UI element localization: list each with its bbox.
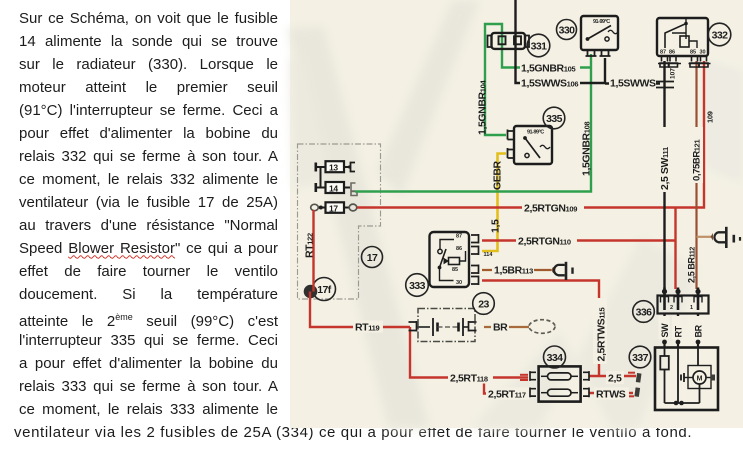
svg-text:85: 85 <box>452 267 458 273</box>
svg-text:86: 86 <box>669 50 675 56</box>
svg-text:1,5: 1,5 <box>490 219 502 233</box>
svg-text:91-99°C: 91-99°C <box>527 130 544 136</box>
svg-text:GEBR: GEBR <box>492 160 504 190</box>
svg-text:86: 86 <box>456 246 462 252</box>
svg-text:BR: BR <box>693 324 703 337</box>
svg-text:114: 114 <box>484 252 494 258</box>
svg-text:0,75BR121: 0,75BR121 <box>692 139 703 181</box>
svg-text:30: 30 <box>700 50 706 56</box>
svg-text:2,5RTGN109: 2,5RTGN109 <box>524 203 577 215</box>
svg-text:91-99°C: 91-99°C <box>593 19 610 25</box>
svg-text:2,5RT118: 2,5RT118 <box>450 373 488 385</box>
svg-text:17: 17 <box>329 203 338 213</box>
svg-text:334: 334 <box>547 352 563 364</box>
svg-text:107: 107 <box>670 68 677 79</box>
svg-text:BR: BR <box>493 322 508 334</box>
svg-text:335: 335 <box>546 113 562 125</box>
svg-text:1,5GNBR108: 1,5GNBR108 <box>581 122 593 176</box>
svg-text:2: 2 <box>670 305 673 311</box>
svg-text:336: 336 <box>636 307 652 319</box>
svg-text:23: 23 <box>478 299 489 311</box>
svg-text:109: 109 <box>706 111 715 123</box>
svg-text:331: 331 <box>531 41 547 53</box>
svg-text:2,5RTWS115: 2,5RTWS115 <box>596 307 608 361</box>
svg-text:87: 87 <box>660 50 666 56</box>
svg-text:17f: 17f <box>317 284 331 296</box>
svg-text:1,5SWWS106: 1,5SWWS106 <box>521 78 578 90</box>
svg-text:2,5 SW111: 2,5 SW111 <box>659 147 671 190</box>
svg-text:1,5GNBR105: 1,5GNBR105 <box>521 63 575 75</box>
svg-text:330: 330 <box>559 25 575 37</box>
svg-text:30: 30 <box>456 280 462 286</box>
svg-text:14: 14 <box>329 183 338 193</box>
svg-text:87: 87 <box>456 234 462 240</box>
svg-text:RT122: RT122 <box>304 233 316 258</box>
svg-text:1,5SWWS: 1,5SWWS <box>610 78 656 90</box>
svg-text:2,5: 2,5 <box>608 373 622 385</box>
svg-text:RTWS: RTWS <box>596 389 626 401</box>
svg-text:337: 337 <box>632 352 648 364</box>
svg-text:13: 13 <box>329 163 338 173</box>
svg-text:RT119: RT119 <box>355 322 380 334</box>
svg-text:RT: RT <box>673 325 683 337</box>
svg-text:SW: SW <box>660 323 670 338</box>
svg-text:333: 333 <box>409 280 425 292</box>
svg-text:1,5BR113: 1,5BR113 <box>494 265 533 277</box>
svg-text:1: 1 <box>690 305 693 311</box>
svg-text:2,5RT117: 2,5RT117 <box>488 389 526 401</box>
svg-text:2,5RTGN110: 2,5RTGN110 <box>518 236 571 248</box>
svg-text:332: 332 <box>712 30 728 42</box>
svg-text:17: 17 <box>367 252 378 264</box>
svg-text:85: 85 <box>690 50 696 56</box>
svg-text:1,5GNBR104: 1,5GNBR104 <box>477 80 489 135</box>
svg-text:M: M <box>697 376 703 383</box>
